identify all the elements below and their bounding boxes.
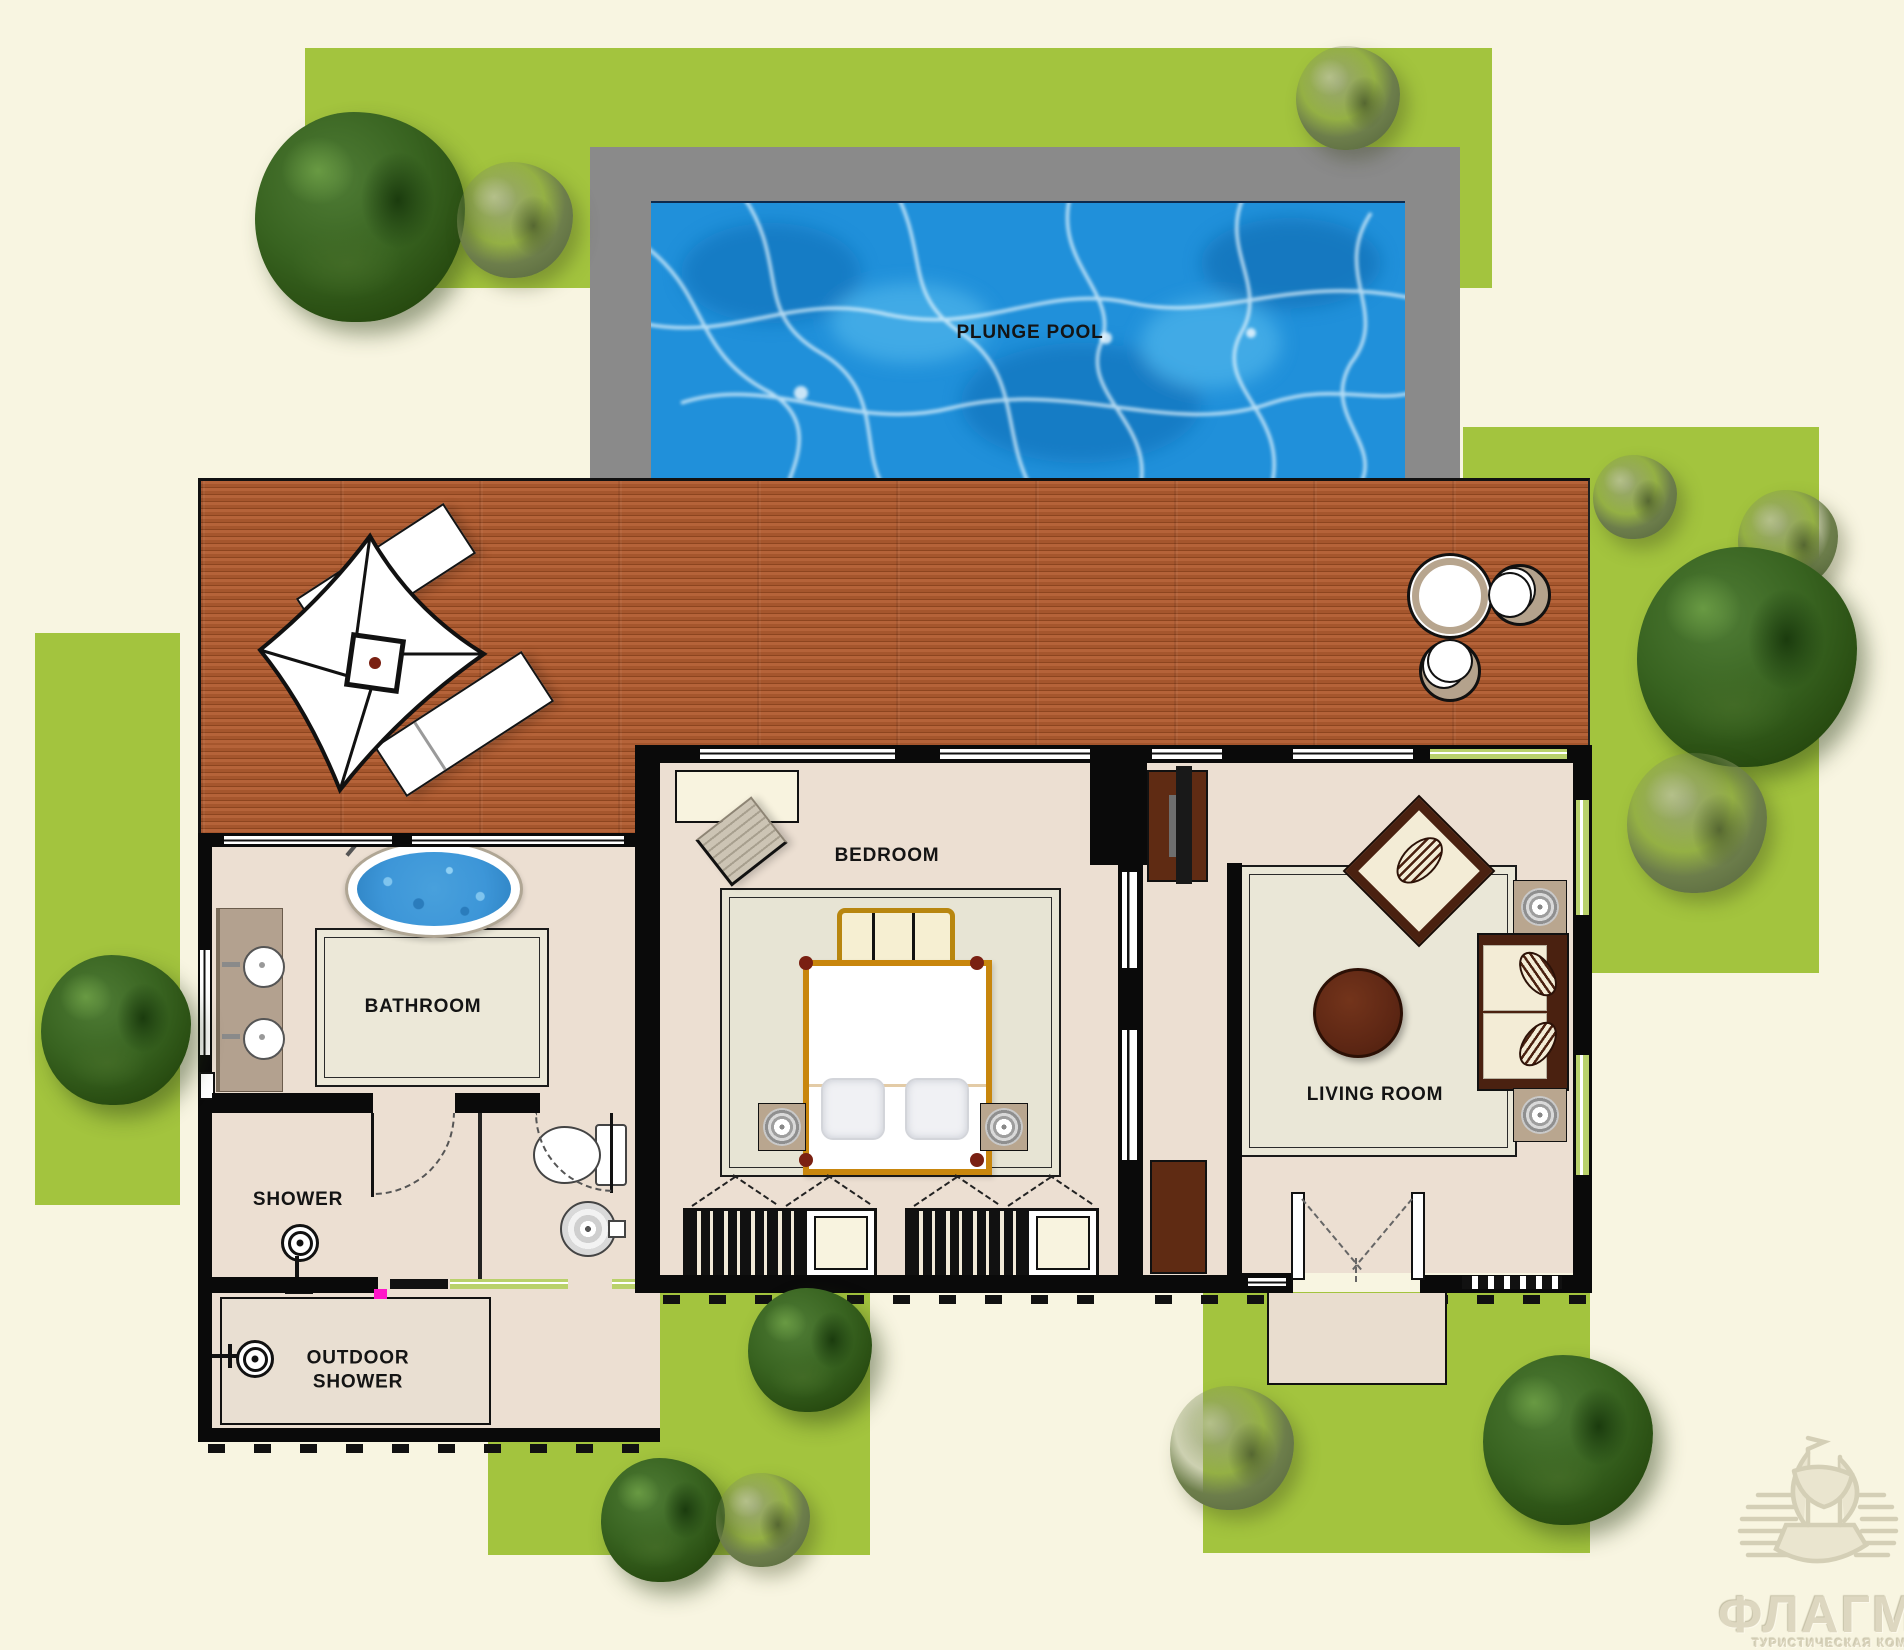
speaker	[1513, 880, 1567, 934]
bathtub	[345, 840, 523, 938]
deck-chair	[1419, 640, 1481, 702]
deck-table-rim	[1412, 558, 1488, 634]
wardrobe	[905, 1208, 1099, 1280]
window	[1430, 749, 1567, 759]
bed-bench	[837, 908, 955, 968]
bedroom-label: BEDROOM	[835, 844, 940, 868]
wall-segment	[212, 1093, 373, 1113]
pillow	[905, 1078, 969, 1140]
deck-chair	[1489, 564, 1551, 626]
watermark: ФЛАГМАН ТУРИСТИЧЕСКАЯ КОМПАНИЯ	[1700, 1425, 1904, 1650]
speaker	[1513, 1088, 1567, 1142]
bathtub-water	[357, 852, 511, 926]
bench-divider	[872, 913, 875, 963]
window	[1248, 1278, 1286, 1286]
floor-plan-canvas: PLUNGE POOL BATHROOM S	[0, 0, 1904, 1650]
foundation-ticks	[663, 1295, 1118, 1304]
deck-table	[1407, 553, 1493, 639]
bed	[803, 960, 992, 1175]
bed-post	[799, 956, 813, 970]
watermark-brand: ФЛАГМАН	[1718, 1585, 1904, 1645]
tree	[601, 1458, 725, 1582]
sliding-door	[1293, 749, 1413, 759]
wardrobe-hanging-clothes	[908, 1211, 1029, 1277]
window-sill	[390, 1279, 448, 1289]
entrance-door-leaf	[1291, 1192, 1305, 1280]
window	[450, 1279, 568, 1289]
nightstand-speaker	[758, 1103, 806, 1151]
wall-segment	[635, 745, 660, 1293]
window	[200, 950, 210, 1055]
sliding-door	[1152, 749, 1222, 759]
pool-label: PLUNGE POOL	[956, 321, 1103, 345]
sliding-door	[940, 749, 1090, 759]
wardrobe-shelf	[814, 1216, 868, 1270]
faucet	[222, 1034, 240, 1039]
sliding-door	[700, 749, 895, 759]
sideboard	[1150, 1160, 1207, 1274]
wall-segment	[660, 1275, 1293, 1293]
wardrobe	[683, 1208, 877, 1280]
coffee-table	[1313, 968, 1403, 1058]
tree	[1637, 547, 1857, 767]
bathroom-label: BATHROOM	[365, 995, 482, 1019]
wc-partition-wall	[478, 1113, 482, 1281]
wardrobe-hanging-clothes	[686, 1211, 807, 1277]
wall-segment	[455, 1093, 540, 1113]
parasol-umbrella	[252, 528, 502, 800]
shower-label: SHOWER	[253, 1188, 343, 1212]
ship-logo-icon	[1728, 1433, 1904, 1593]
nightstand-speaker	[980, 1103, 1028, 1151]
sink-drain	[259, 1034, 265, 1040]
outdoor-shower-head	[236, 1340, 274, 1378]
wall-segment	[1227, 863, 1242, 1273]
wardrobe-shelf	[1036, 1216, 1090, 1270]
faucet	[222, 962, 240, 967]
bed-post	[799, 1153, 813, 1167]
outdoor-shower-label: OUTDOOR SHOWER	[307, 1346, 410, 1394]
wall-segment	[198, 1428, 660, 1442]
wall-segment	[212, 1277, 378, 1293]
pillow	[821, 1078, 885, 1140]
sliding-door	[1122, 872, 1137, 968]
bidet-tap	[608, 1220, 626, 1238]
grass-patch-left	[35, 633, 180, 1205]
shower-head	[281, 1224, 319, 1262]
living-room-label: LIVING ROOM	[1307, 1083, 1444, 1107]
bed-post	[970, 1153, 984, 1167]
window	[1576, 1055, 1589, 1175]
vanity-counter	[216, 908, 283, 1092]
tree	[1483, 1355, 1653, 1525]
sliding-door	[1122, 1030, 1137, 1160]
wall-segment	[198, 833, 212, 1442]
outdoor-shower-bracket	[228, 1344, 232, 1368]
tree	[255, 112, 465, 322]
entrance-door-swing	[1355, 1258, 1357, 1282]
armchair-pillow	[1388, 829, 1452, 893]
entrance-porch	[1267, 1293, 1447, 1385]
window	[224, 836, 392, 844]
magenta-marker	[374, 1289, 387, 1299]
sofa	[1477, 933, 1569, 1091]
bed-post	[970, 956, 984, 970]
foundation-ticks	[208, 1444, 656, 1453]
sink-drain	[259, 962, 265, 968]
window	[1576, 800, 1589, 915]
wall-segment	[1118, 745, 1143, 1293]
tv-screen	[1176, 766, 1192, 884]
watermark-tagline: ТУРИСТИЧЕСКАЯ КОМПАНИЯ	[1752, 1638, 1904, 1650]
bench-divider	[912, 913, 915, 963]
window-shutters	[1462, 1276, 1562, 1289]
entrance-door-leaf	[1411, 1192, 1425, 1280]
window	[412, 836, 624, 844]
tv-stand	[1169, 795, 1176, 857]
